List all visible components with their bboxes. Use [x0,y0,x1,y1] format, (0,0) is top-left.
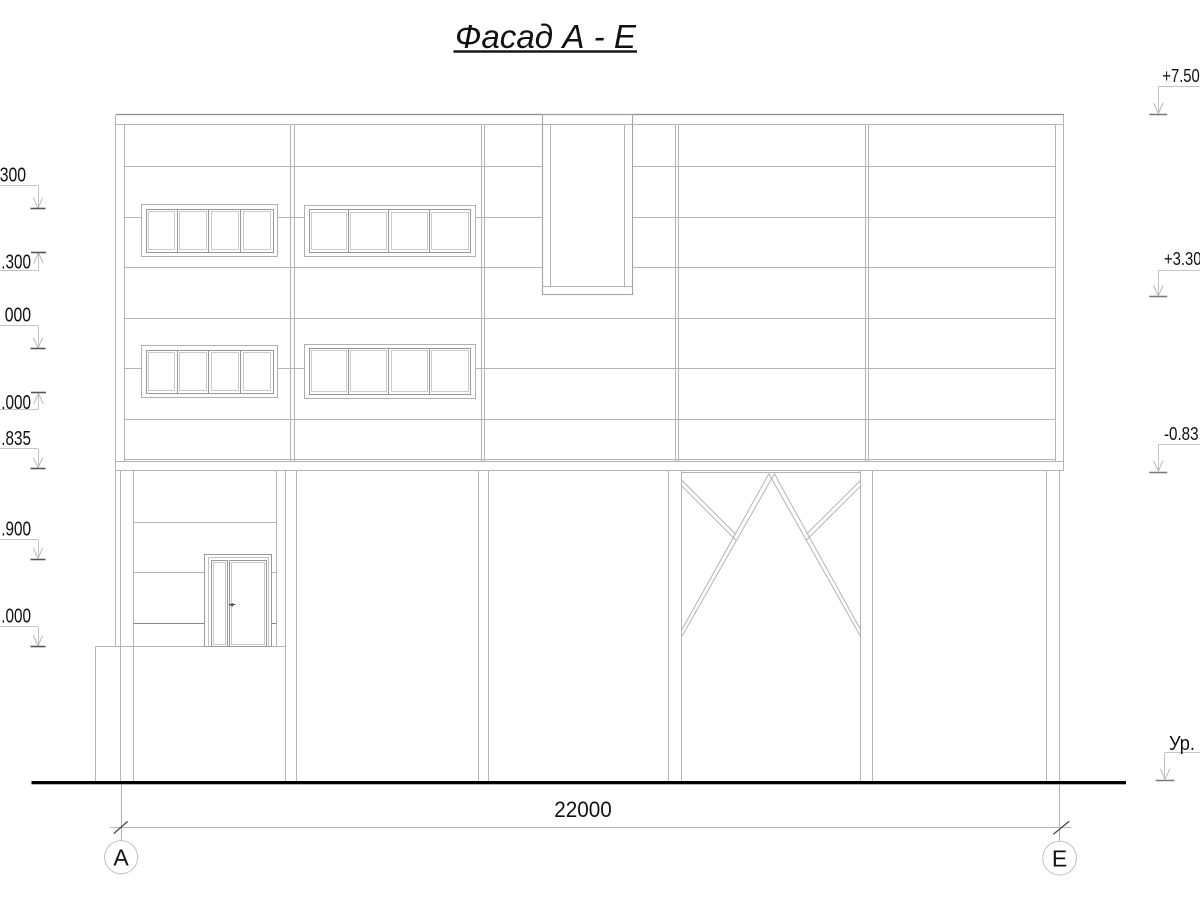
svg-text:А: А [113,845,129,871]
svg-text:Е: Е [1052,846,1067,872]
svg-text:300: 300 [0,164,26,186]
svg-text:22000: 22000 [554,797,612,822]
svg-text:-0.83: -0.83 [1164,424,1199,444]
svg-text:.900: .900 [1,519,31,541]
svg-text:000: 000 [5,305,31,327]
svg-text:.000: .000 [1,606,31,628]
svg-text:.000: .000 [1,392,31,414]
svg-text:.835: .835 [1,428,31,450]
svg-text:.300: .300 [1,252,31,274]
svg-text:+3.30: +3.30 [1164,249,1200,269]
svg-text:Фасад А - Е: Фасад А - Е [455,18,637,55]
svg-text:+7.50: +7.50 [1162,66,1200,86]
svg-text:Ур.: Ур. [1169,732,1195,755]
